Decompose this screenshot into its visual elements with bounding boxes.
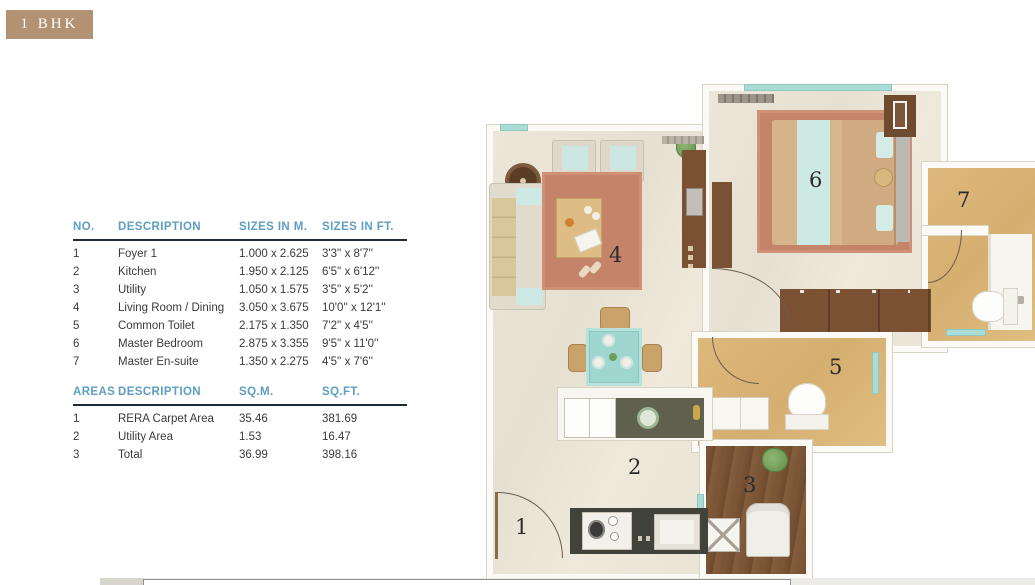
- folding-rack: [706, 518, 740, 552]
- dresser-mirror: [893, 101, 907, 129]
- bottom-edge-tab: [100, 578, 144, 585]
- kitchen-sink-basin: [654, 514, 700, 550]
- room-number-utility: 3: [743, 475, 756, 496]
- washbasin-divider: [740, 397, 741, 430]
- sofa-pillow: [516, 288, 543, 305]
- room-number-common-toilet: 5: [829, 357, 842, 378]
- sofa-pillow: [516, 188, 543, 205]
- sofa-cushions: [492, 198, 516, 296]
- dining-plate: [620, 356, 633, 369]
- window-ensuite: [946, 329, 986, 336]
- counter-bottle: [693, 405, 700, 420]
- bedroom-wardrobe-tall: [712, 182, 732, 268]
- washing-machine: [746, 503, 790, 557]
- dining-plate: [592, 356, 605, 369]
- room-number-ensuite: 7: [957, 190, 970, 211]
- pan: [588, 520, 605, 539]
- dining-chair: [642, 344, 662, 372]
- room-number-living: 4: [609, 245, 622, 266]
- wardrobe-knobs: [800, 290, 910, 293]
- window-common-toilet: [872, 352, 879, 394]
- dining-centerpiece: [609, 353, 617, 361]
- console-knobs: [688, 246, 693, 268]
- toilet-tank: [1003, 288, 1018, 325]
- room-number-kitchen: 2: [628, 457, 641, 478]
- stove-burner: [610, 532, 619, 541]
- floor-plan: 1 2 3 4 5 6 7: [0, 0, 1035, 585]
- bedside-lamp: [874, 168, 893, 187]
- shoe-rack: [662, 136, 704, 144]
- dining-chair: [568, 344, 588, 372]
- window-living: [500, 124, 528, 131]
- armchair-cushion: [562, 146, 588, 170]
- coffee-table-flowers: [565, 218, 574, 227]
- room-number-bedroom: 6: [809, 170, 822, 191]
- coffee-table-cup: [592, 212, 600, 220]
- toilet-tank: [785, 414, 829, 430]
- bed-headboard: [896, 124, 910, 242]
- bottom-cropped-panel: [143, 579, 791, 585]
- curtain-rod: [718, 94, 774, 103]
- kitchen-sink-round: [637, 407, 659, 429]
- fridge: [564, 398, 616, 438]
- counter-dots: [638, 536, 650, 541]
- window-bedroom: [744, 84, 892, 91]
- tv-screen: [686, 188, 703, 216]
- toilet: [972, 291, 1006, 322]
- kitchen-counter-dark: [616, 398, 704, 438]
- room-number-foyer: 1: [515, 517, 528, 538]
- bed-pillow: [876, 205, 893, 231]
- bedroom-wardrobe: [780, 289, 931, 332]
- armchair-cushion: [610, 146, 636, 170]
- coffee-table-cup: [584, 206, 592, 214]
- plant-utility: [762, 448, 788, 472]
- fridge-door-divider: [589, 398, 590, 438]
- stove-burner: [608, 516, 618, 526]
- dining-plate: [602, 334, 615, 347]
